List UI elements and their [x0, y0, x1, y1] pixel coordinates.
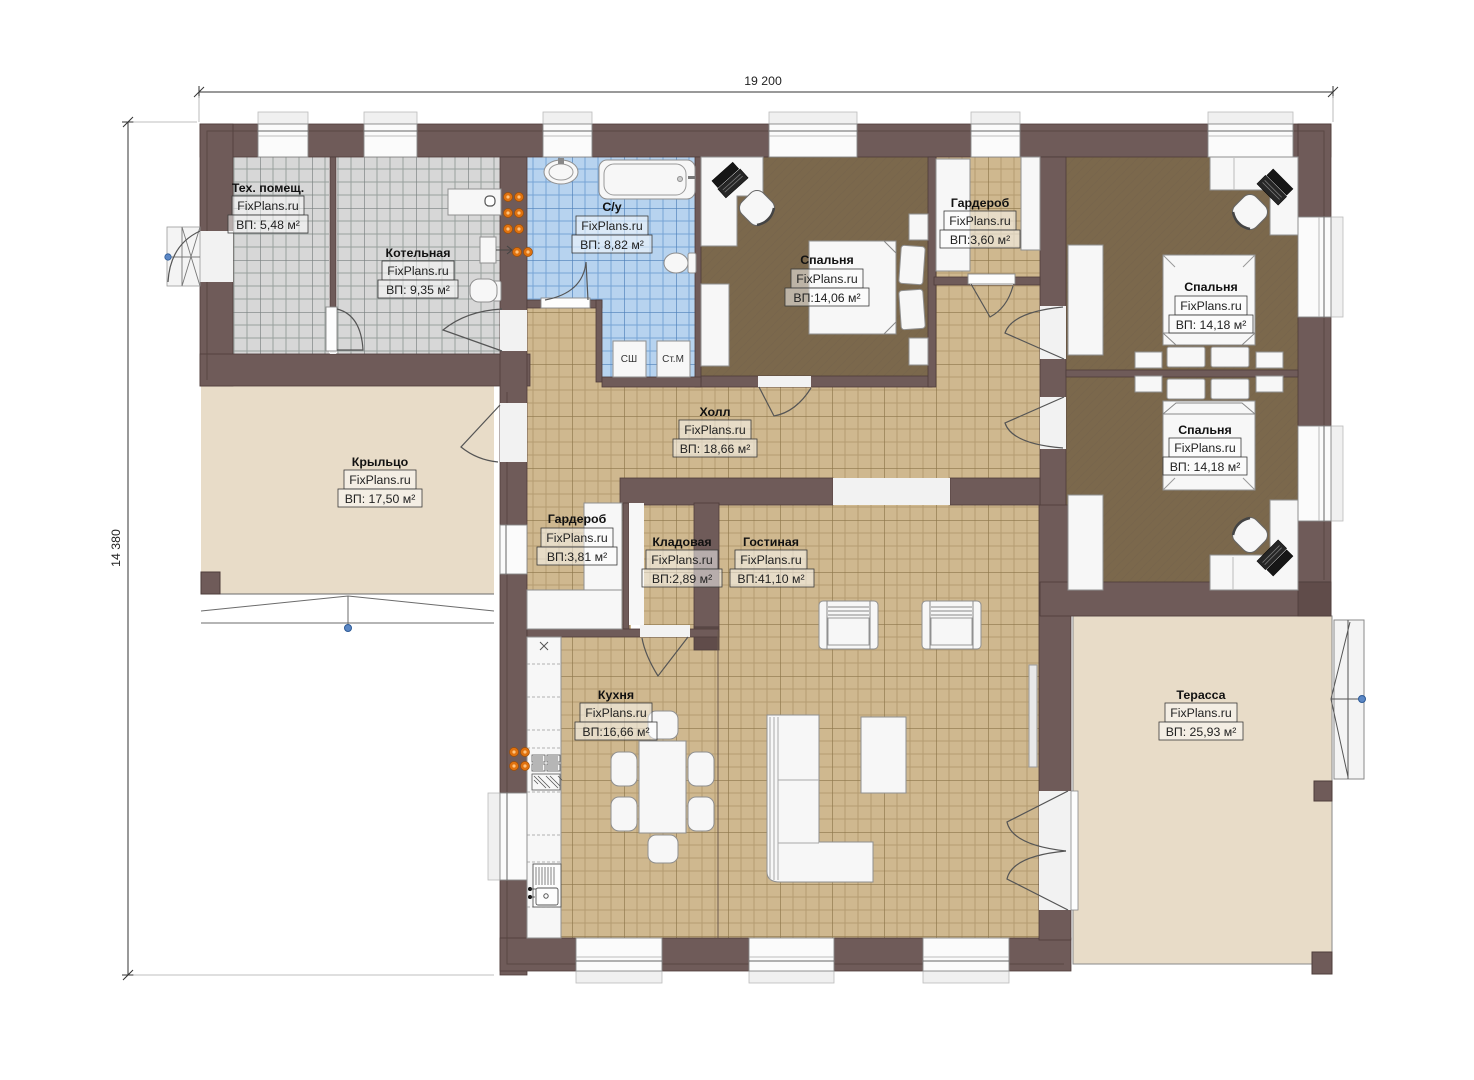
svg-text:СШ: СШ [621, 354, 637, 365]
svg-text:19 200: 19 200 [744, 74, 782, 88]
svg-text:С/у: С/у [602, 200, 621, 214]
svg-text:FixPlans.ru: FixPlans.ru [651, 553, 713, 567]
svg-text:Терасса: Терасса [1176, 688, 1225, 702]
svg-text:14 380: 14 380 [109, 529, 123, 567]
svg-text:ВП:14,06 м²: ВП:14,06 м² [793, 291, 860, 305]
svg-text:ВП:16,66 м²: ВП:16,66 м² [582, 725, 649, 739]
svg-text:Холл: Холл [699, 405, 730, 419]
svg-text:FixPlans.ru: FixPlans.ru [740, 553, 802, 567]
svg-text:ВП: 5,48 м²: ВП: 5,48 м² [236, 218, 300, 232]
svg-text:FixPlans.ru: FixPlans.ru [684, 423, 746, 437]
svg-text:ВП:2,89 м²: ВП:2,89 м² [652, 572, 712, 586]
svg-text:ВП: 14,18 м²: ВП: 14,18 м² [1176, 318, 1247, 332]
svg-text:Крыльцо: Крыльцо [352, 455, 409, 469]
svg-text:FixPlans.ru: FixPlans.ru [349, 473, 411, 487]
svg-text:FixPlans.ru: FixPlans.ru [237, 199, 299, 213]
svg-text:FixPlans.ru: FixPlans.ru [581, 219, 643, 233]
svg-text:Спальня: Спальня [1178, 423, 1232, 437]
svg-text:FixPlans.ru: FixPlans.ru [1174, 441, 1236, 455]
svg-text:FixPlans.ru: FixPlans.ru [546, 531, 608, 545]
svg-text:Кладовая: Кладовая [652, 535, 711, 549]
svg-text:ВП: 18,66 м²: ВП: 18,66 м² [680, 442, 751, 456]
svg-text:ВП: 14,18 м²: ВП: 14,18 м² [1170, 460, 1241, 474]
svg-text:Спальня: Спальня [800, 253, 854, 267]
svg-text:FixPlans.ru: FixPlans.ru [585, 706, 647, 720]
svg-text:Тех. помещ.: Тех. помещ. [232, 181, 304, 195]
svg-text:ВП: 9,35 м²: ВП: 9,35 м² [386, 283, 450, 297]
svg-text:FixPlans.ru: FixPlans.ru [949, 214, 1011, 228]
svg-text:FixPlans.ru: FixPlans.ru [387, 264, 449, 278]
svg-text:ВП:3,81 м²: ВП:3,81 м² [547, 550, 607, 564]
svg-text:FixPlans.ru: FixPlans.ru [796, 272, 858, 286]
svg-text:Кухня: Кухня [598, 688, 634, 702]
svg-text:ВП: 17,50 м²: ВП: 17,50 м² [345, 492, 416, 506]
svg-text:ВП:41,10 м²: ВП:41,10 м² [737, 572, 804, 586]
svg-text:Спальня: Спальня [1184, 280, 1238, 294]
svg-text:Гостиная: Гостиная [743, 535, 799, 549]
svg-text:FixPlans.ru: FixPlans.ru [1180, 299, 1242, 313]
svg-text:Ст.М: Ст.М [662, 354, 684, 365]
svg-text:Гардероб: Гардероб [548, 512, 607, 526]
svg-text:FixPlans.ru: FixPlans.ru [1170, 706, 1232, 720]
svg-text:Котельная: Котельная [386, 246, 451, 260]
svg-text:Гардероб: Гардероб [951, 196, 1010, 210]
svg-text:ВП: 25,93 м²: ВП: 25,93 м² [1166, 725, 1237, 739]
svg-text:ВП:3,60 м²: ВП:3,60 м² [950, 233, 1010, 247]
svg-text:ВП: 8,82 м²: ВП: 8,82 м² [580, 238, 644, 252]
